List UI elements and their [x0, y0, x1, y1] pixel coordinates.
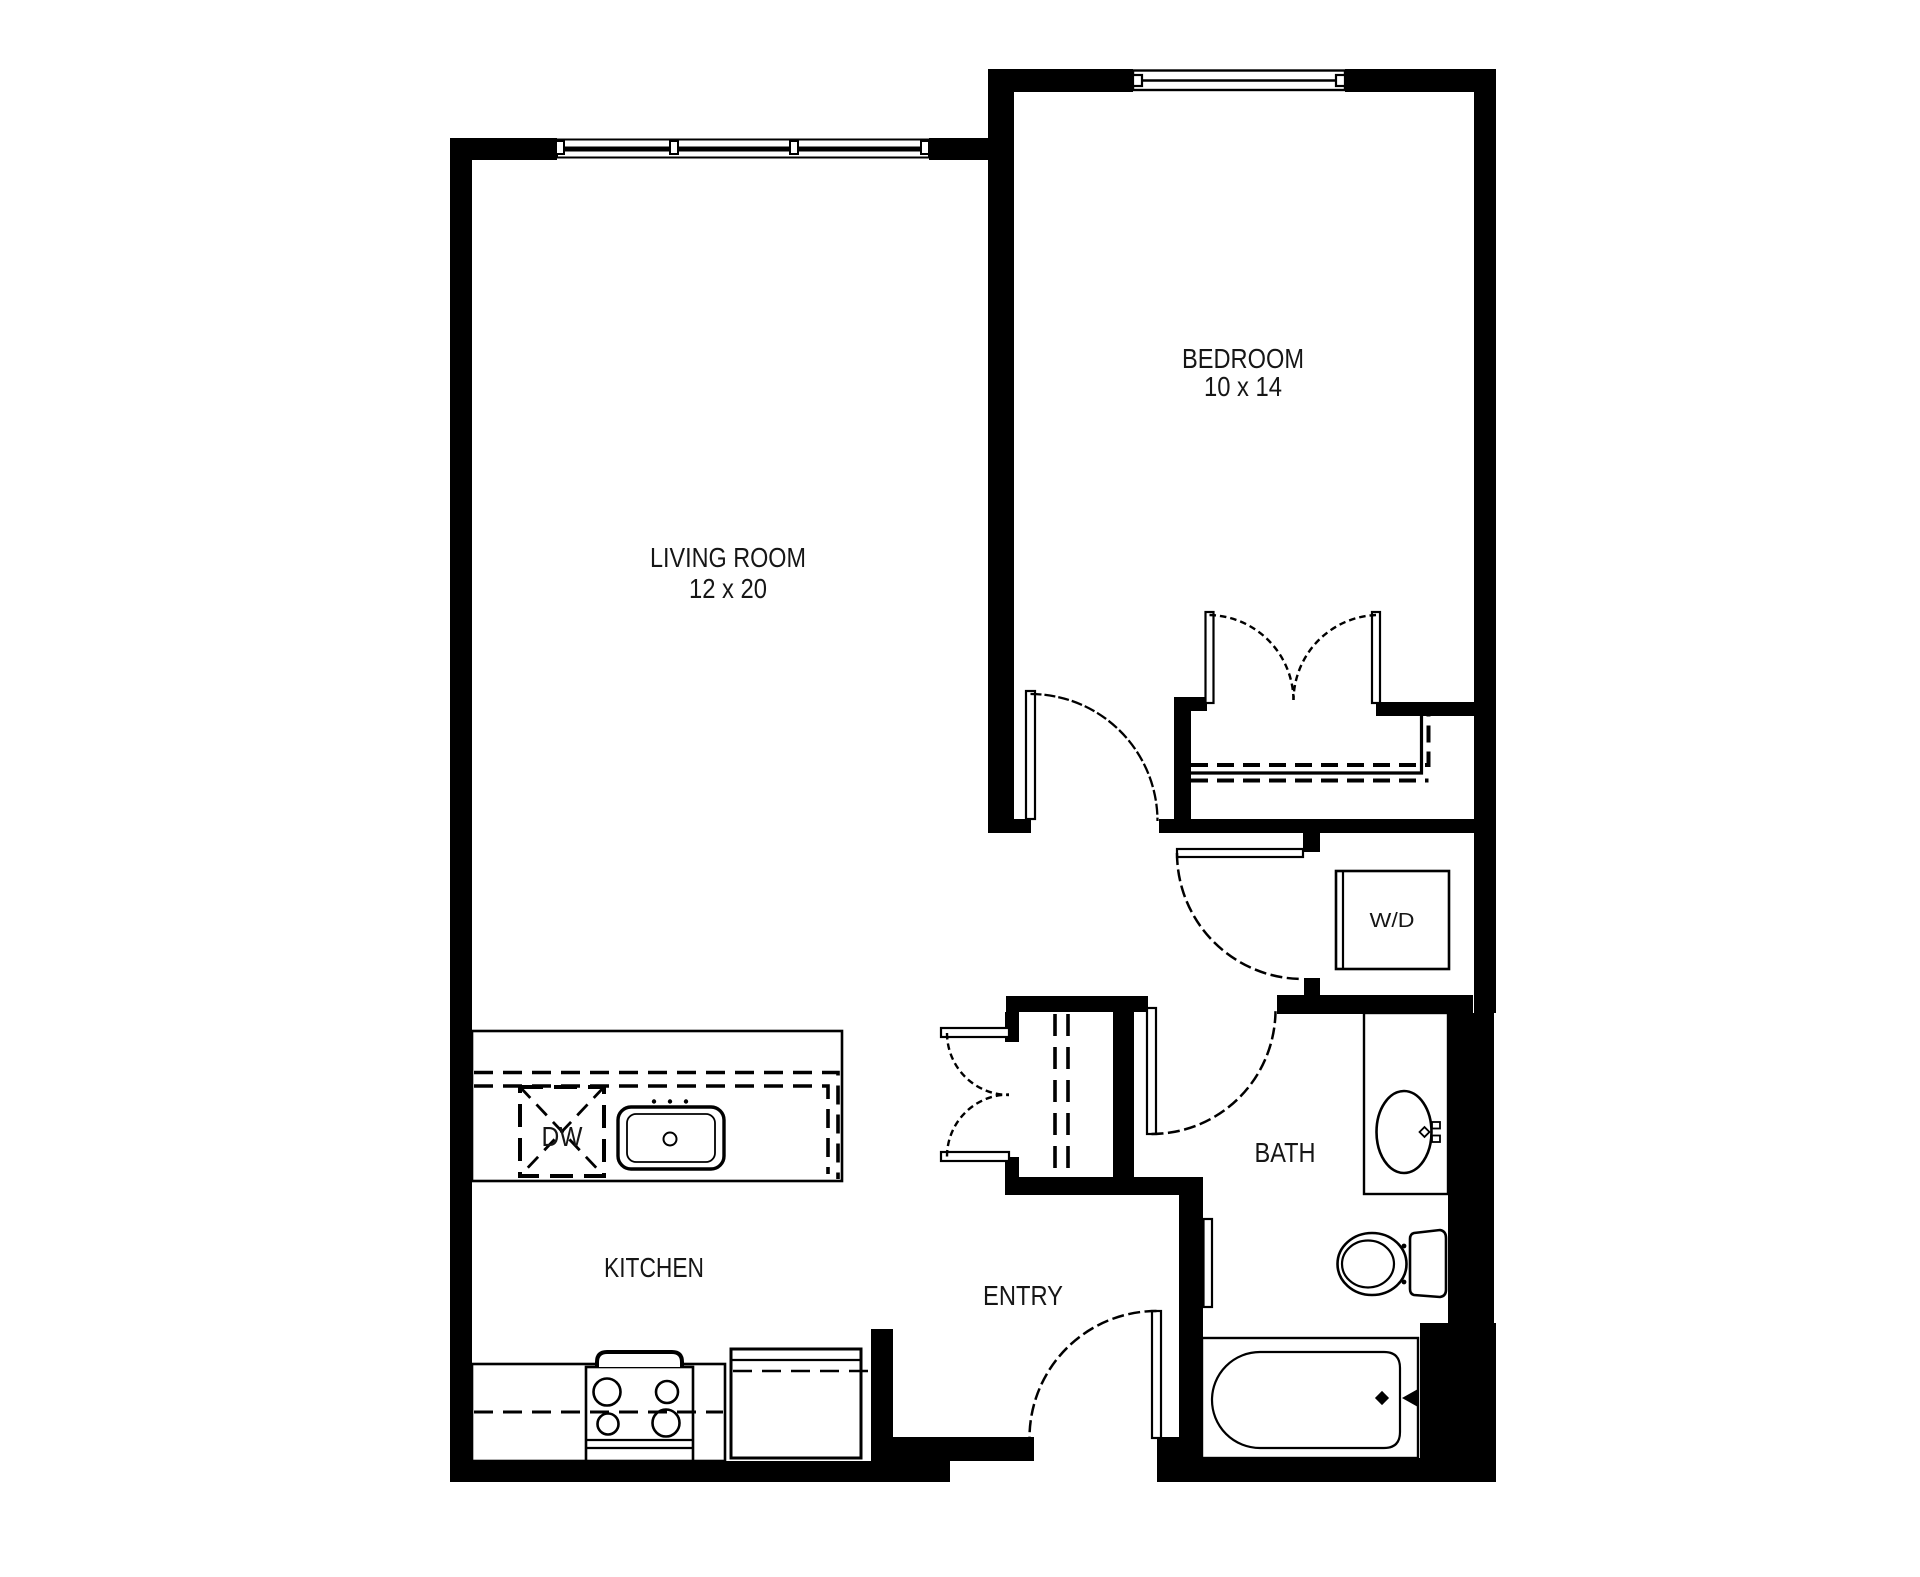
svg-text:BEDROOM: BEDROOM — [1182, 343, 1304, 374]
svg-text:LIVING ROOM: LIVING ROOM — [650, 542, 806, 573]
svg-text:W/D: W/D — [1370, 909, 1415, 932]
svg-text:10 x 14: 10 x 14 — [1204, 371, 1282, 402]
svg-text:KITCHEN: KITCHEN — [604, 1252, 704, 1283]
svg-text:ENTRY: ENTRY — [983, 1280, 1063, 1311]
svg-text:12 x 20: 12 x 20 — [689, 573, 767, 604]
svg-text:BATH: BATH — [1255, 1137, 1316, 1168]
svg-text:DW: DW — [542, 1121, 583, 1152]
